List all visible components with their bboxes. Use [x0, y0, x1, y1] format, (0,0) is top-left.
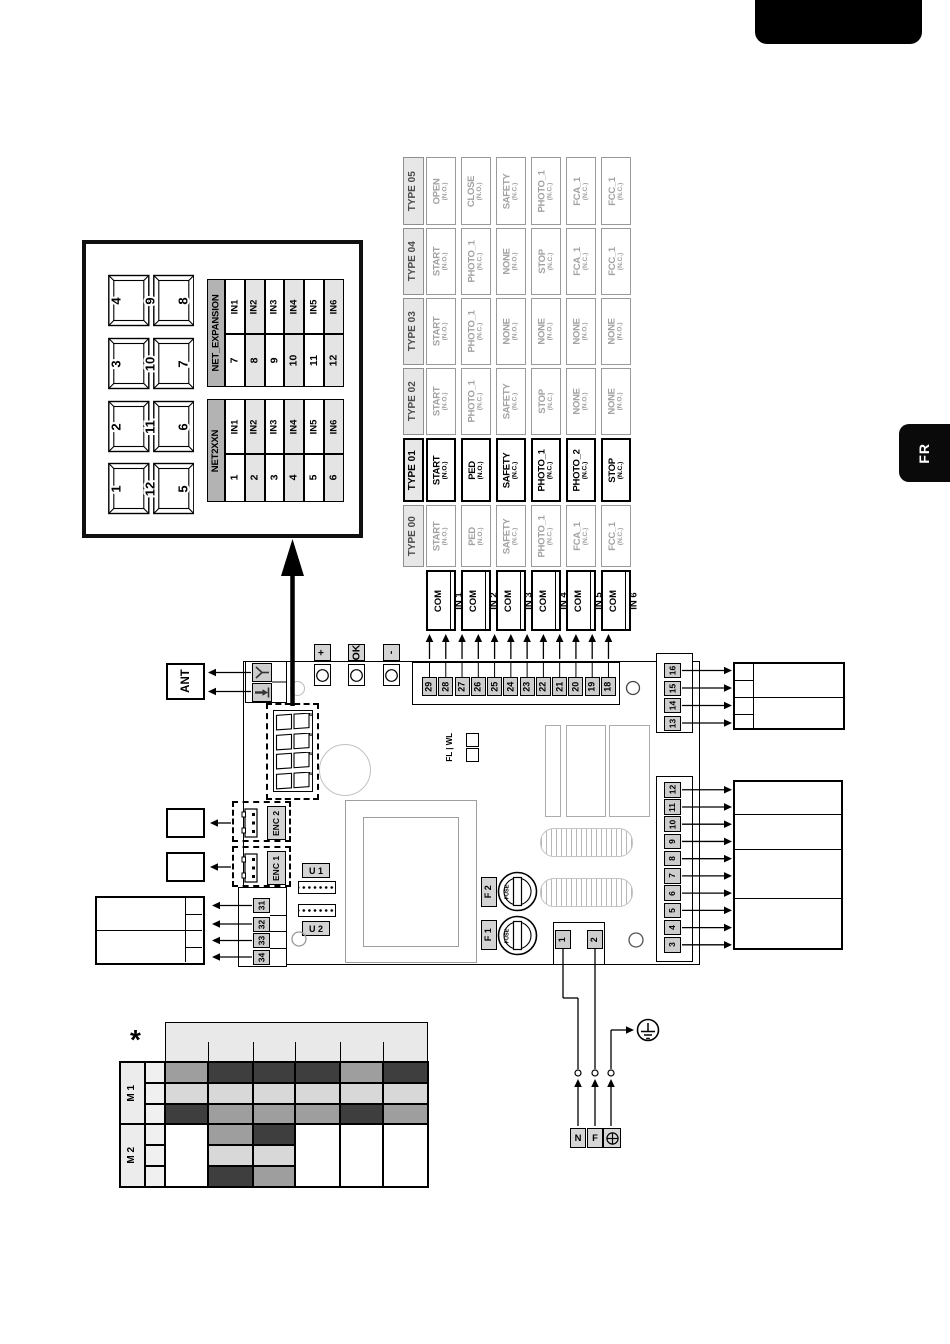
net-table-input: IN6	[324, 279, 344, 334]
terminal-6-text: 6	[668, 891, 677, 896]
seven-segment-icon: 3107	[108, 337, 194, 391]
net-table-input: IN6	[324, 399, 344, 454]
type-cell-text: SAFETY(N.C.)	[503, 452, 520, 488]
antenna-box: ANT	[166, 663, 205, 700]
com-label-text: COM	[574, 589, 584, 611]
fl-wl-pin	[466, 748, 479, 762]
seven-segment-display	[273, 710, 313, 792]
terminal-4-text: 4	[668, 925, 677, 930]
type-cell: NONE(N.O.)	[496, 228, 526, 295]
terminal-5: 5	[664, 903, 681, 919]
net-table-input-text: IN1	[230, 299, 240, 314]
divider	[97, 930, 202, 931]
type-header-type00: TYPE 00	[403, 505, 424, 567]
terminal-8-text: 8	[668, 856, 677, 861]
function-mode: (N.O.)	[618, 388, 625, 414]
function-mode: (N.C.)	[513, 518, 520, 554]
coil-1	[540, 828, 633, 857]
terminal-29: 29	[422, 677, 437, 696]
net-table-header-0-text: NET_EXPANSION	[211, 295, 221, 372]
button-label-plus-text: +	[317, 649, 328, 655]
digit-icon	[275, 752, 313, 770]
encoder-target-box-1	[166, 852, 205, 882]
in-label-text: IN 6	[630, 592, 640, 609]
svg-text:6: 6	[175, 423, 190, 430]
type-cell-text: START(N.O.)	[433, 521, 450, 550]
terminal-3: 3	[664, 937, 681, 953]
type-cell: FCA_1(N.C.)	[566, 228, 596, 295]
com-in-block: COMIN 3	[496, 570, 526, 631]
terminal-31: 31	[253, 898, 270, 913]
relay-1	[545, 725, 561, 817]
svg-text:11: 11	[142, 420, 157, 434]
net-table-terminal-text: 8	[249, 358, 260, 364]
svg-text:3: 3	[108, 360, 123, 367]
type-cell-text: FCC_1(N.C.)	[608, 247, 625, 276]
type-cell: STOP(N.C.)	[531, 228, 561, 295]
type-cell: STOP(N.C.)	[601, 438, 631, 502]
net-table-terminal-text: 9	[269, 358, 280, 364]
type-cell-text: OPEN(N.O.)	[433, 178, 450, 204]
function-mode: (N.C.)	[513, 452, 520, 488]
svg-text:8: 8	[175, 297, 190, 304]
type-cell: SAFETY(N.C.)	[496, 438, 526, 502]
type-cell: PHOTO_1(N.C.)	[461, 228, 491, 295]
type-cell: NONE(N.O.)	[566, 368, 596, 435]
svg-text:2: 2	[108, 423, 123, 430]
type-cell: FCA_1(N.C.)	[566, 157, 596, 225]
terminal-3-text: 3	[668, 942, 677, 947]
terminal-20-text: 20	[571, 681, 580, 691]
type-cell-text: NONE(N.O.)	[608, 318, 625, 344]
type-cell: PHOTO_2(N.C.)	[566, 438, 596, 502]
antenna-shield-terminal	[252, 683, 272, 702]
type-cell-text: START(N.O.)	[433, 247, 450, 276]
function-mode: (N.C.)	[618, 522, 625, 551]
pins	[299, 882, 335, 893]
net-table-terminal-text: 3	[269, 475, 280, 481]
net-table-input-text: IN5	[309, 299, 319, 314]
net-table-terminal: 10	[284, 334, 304, 387]
u1-pin-header	[298, 881, 336, 894]
type-header-type03: TYPE 03	[403, 298, 424, 365]
button-label-ok-text: OK	[351, 645, 362, 661]
digit-icon	[275, 713, 313, 731]
seven-segment-icon: 1125	[108, 462, 194, 516]
type-header-type01-text: TYPE 01	[408, 450, 419, 490]
function-mode: (N.C.)	[548, 249, 555, 274]
net-table-terminal-text: 11	[309, 355, 320, 366]
terminal-1-text: 1	[558, 937, 567, 942]
terminal-2: 2	[587, 930, 603, 949]
function-mode: (N.C.)	[548, 515, 555, 557]
type-cell-text: STOP(N.C.)	[608, 458, 625, 483]
net-table-input-text: IN6	[329, 419, 339, 434]
coil-2	[540, 878, 633, 907]
function-mode: (N.O.)	[478, 527, 485, 546]
net-table-input: IN4	[284, 399, 304, 454]
display-digit	[275, 772, 313, 790]
transformer-inner	[363, 817, 459, 947]
terminal-31-text: 31	[257, 901, 266, 910]
terminal-28-text: 28	[441, 681, 450, 691]
fuse1-label-text: F 1	[484, 928, 493, 941]
terminal-22-text: 22	[539, 681, 548, 691]
net-table-input-text: IN3	[270, 299, 280, 314]
terminal-6: 6	[664, 885, 681, 901]
net-table-input-text: IN3	[270, 419, 280, 434]
type-cell: NONE(N.O.)	[531, 298, 561, 365]
display-digit	[275, 752, 313, 770]
function-mode: (N.C.)	[583, 177, 590, 206]
function-mode: (N.O.)	[443, 247, 450, 276]
terminal-26-text: 26	[474, 681, 483, 691]
terminal-25: 25	[487, 677, 502, 696]
fuse2-label-text: F 2	[484, 885, 493, 898]
button-label-ok: OK	[348, 644, 365, 661]
net-table-terminal: 12	[324, 334, 344, 387]
function-mode: (N.C.)	[618, 247, 625, 276]
function-mode: (N.O.)	[443, 317, 450, 346]
net-table-terminal: 9	[265, 334, 285, 387]
divider	[735, 898, 841, 899]
net-table-terminal-text: 5	[309, 475, 320, 481]
function-mode: (N.O.)	[583, 388, 590, 414]
com-in-block: COMIN 2	[461, 570, 491, 631]
divider	[735, 814, 841, 815]
antenna-ground-icon	[253, 684, 271, 701]
type-cell-text: FCA_1(N.C.)	[573, 247, 590, 276]
net-table-input-text: IN4	[289, 419, 299, 434]
encoder-connector-enc2: ENC 2	[232, 801, 291, 842]
svg-text:4: 4	[108, 297, 123, 305]
function-mode: (N.C.)	[513, 173, 520, 209]
button-circle	[384, 668, 399, 683]
net-table-terminal-text: 12	[328, 355, 339, 367]
type-header-type01: TYPE 01	[403, 438, 424, 502]
fuse-text: FUSE	[505, 884, 511, 899]
com-label: COM	[533, 572, 555, 629]
motor-table-header-tick	[295, 1042, 296, 1062]
enc-label: ENC 1	[267, 851, 286, 885]
motor-table-header-tick	[208, 1042, 209, 1062]
antenna-terminal	[252, 663, 272, 682]
type-cell-text: NONE(N.O.)	[608, 388, 625, 414]
divider	[735, 697, 843, 698]
display-detail-box: 498310721161125NET_EXPANSIONIN17IN28IN39…	[82, 240, 363, 538]
net-table-input: IN5	[304, 279, 324, 334]
u2-label: U 2	[302, 921, 330, 936]
display-digit-group: 2116	[108, 400, 194, 454]
net-table-terminal: 4	[284, 454, 304, 502]
control-target-box-upper	[733, 662, 845, 730]
terminal-21: 21	[552, 677, 567, 696]
terminal-32-text: 32	[257, 919, 266, 928]
type-cell: PHOTO_1(N.C.)	[531, 505, 561, 567]
terminal-33: 33	[253, 933, 270, 948]
button-label-minus: -	[383, 644, 400, 661]
relay-2	[566, 725, 606, 817]
terminal-19-text: 19	[587, 681, 596, 691]
type-cell-text: CLOSE(N.O.)	[468, 175, 485, 206]
terminal-7-text: 7	[668, 874, 677, 879]
terminal-28: 28	[438, 677, 453, 696]
type-header-type03-text: TYPE 03	[408, 311, 419, 351]
type-header-type05: TYPE 05	[403, 157, 424, 225]
encoder-connector-enc1: ENC 1	[232, 846, 291, 887]
com-label: COM	[428, 572, 450, 629]
terminal-14-text: 14	[668, 701, 677, 710]
com-label: COM	[568, 572, 590, 629]
type-cell-text: NONE(N.O.)	[573, 388, 590, 414]
net-table-input: IN4	[284, 279, 304, 334]
function-mode: (N.C.)	[583, 522, 590, 551]
terminal-4: 4	[664, 920, 681, 936]
divider	[735, 714, 753, 715]
connector-icon	[241, 853, 261, 883]
type-header-type04: TYPE 04	[403, 228, 424, 295]
type-cell-text: SAFETY(N.C.)	[503, 173, 520, 209]
net-table-terminal-text: 7	[229, 358, 240, 364]
type-cell: SAFETY(N.C.)	[496, 505, 526, 567]
type-cell: PHOTO_1(N.C.)	[461, 298, 491, 365]
button-circle	[349, 668, 364, 683]
relay-3	[609, 725, 650, 817]
display-digit-group: 1125	[108, 462, 194, 516]
type-header-type05-text: TYPE 05	[408, 171, 419, 211]
neutral-label: N	[575, 1133, 582, 1144]
com-in-block: COMIN 6	[601, 570, 631, 631]
motor-table-header-tick	[253, 1042, 254, 1062]
svg-text:5: 5	[175, 485, 190, 492]
terminal-27: 27	[455, 677, 470, 696]
button-plus	[314, 664, 331, 686]
terminal-10-text: 10	[668, 819, 677, 828]
type-cell-text: FCC_1(N.C.)	[608, 522, 625, 551]
earth-icon	[605, 1131, 620, 1146]
function-mode: (N.O.)	[443, 387, 450, 416]
divider	[735, 849, 841, 850]
type-cell-text: PHOTO_1(N.C.)	[538, 449, 555, 491]
com-label-text: COM	[539, 589, 549, 611]
enc-label-text: ENC 1	[272, 855, 281, 880]
type-cell-text: START(N.O.)	[433, 455, 450, 484]
function-mode: (N.O.)	[478, 461, 485, 480]
terminal-11: 11	[664, 799, 681, 815]
type-cell: NONE(N.O.)	[601, 368, 631, 435]
type-cell-text: FCA_1(N.C.)	[573, 522, 590, 551]
pins	[299, 905, 335, 916]
display-digit-group: 3107	[108, 337, 194, 391]
type-header-type02-text: TYPE 02	[408, 381, 419, 421]
svg-text:12: 12	[142, 482, 157, 496]
buzzer-small	[290, 681, 305, 696]
seven-segment-icon: 2116	[108, 400, 194, 454]
net-table-input-text: IN2	[250, 299, 260, 314]
antenna-icon	[253, 664, 271, 681]
function-mode: (N.C.)	[513, 384, 520, 420]
manual-page: FR 498310721161125NET_EXPANSIONIN17IN28I…	[0, 0, 950, 1344]
function-mode: (N.C.)	[478, 240, 485, 282]
terminal-14: 14	[664, 698, 681, 713]
terminal-5-text: 5	[668, 908, 677, 913]
type-cell: PHOTO_1(N.C.)	[461, 368, 491, 435]
terminal-22: 22	[536, 677, 551, 696]
net-table-input: IN1	[225, 399, 245, 454]
terminal-13-text: 13	[668, 718, 677, 727]
svg-text:10: 10	[142, 357, 157, 371]
terminal-1: 1	[555, 930, 571, 949]
type-cell: PED(N.O.)	[461, 438, 491, 502]
function-mode: (N.C.)	[548, 449, 555, 491]
seven-segment-icon: 498	[108, 274, 194, 328]
earth-box	[603, 1128, 621, 1148]
net-table-input-text: IN5	[309, 419, 319, 434]
function-mode: (N.O.)	[513, 318, 520, 344]
u2-pin-header	[298, 904, 336, 917]
type-cell-text: STOP(N.C.)	[538, 249, 555, 274]
type-cell-text: SAFETY(N.C.)	[503, 384, 520, 420]
com-label: COM	[463, 572, 485, 629]
terminal-23-text: 23	[522, 681, 531, 691]
net-table-input: IN1	[225, 279, 245, 334]
net-table-terminal: 11	[304, 334, 324, 387]
accessory-target-box	[95, 896, 205, 965]
com-in-block: COMIN 4	[531, 570, 561, 631]
encoder-target-box-2	[166, 808, 205, 838]
type-cell: NONE(N.O.)	[601, 298, 631, 365]
language-tab-label: FR	[917, 443, 932, 464]
net-table-terminal: 1	[225, 454, 245, 502]
motor-table-header-tick	[383, 1042, 384, 1062]
terminal-7: 7	[664, 868, 681, 884]
terminal-9-text: 9	[668, 839, 677, 844]
terminal-27-text: 27	[457, 681, 466, 691]
header-banner	[755, 0, 922, 44]
divider	[735, 680, 753, 681]
type-cell: SAFETY(N.C.)	[496, 368, 526, 435]
terminal-18-text: 18	[604, 681, 613, 691]
svg-text:9: 9	[142, 297, 157, 304]
function-mode: (N.O.)	[618, 318, 625, 344]
fl-wl-pin	[466, 733, 479, 747]
type-header-type00-text: TYPE 00	[408, 516, 419, 556]
connector-icon	[241, 808, 261, 838]
type-cell: NONE(N.O.)	[566, 298, 596, 365]
net-table-terminal-text: 2	[249, 475, 260, 481]
fuse-text: FUSE	[505, 928, 511, 943]
button-ok	[348, 664, 365, 686]
com-in-block: COMIN 1	[426, 570, 456, 631]
terminal-8: 8	[664, 851, 681, 867]
net-table-terminal-text: 10	[289, 355, 300, 367]
net-table-terminal: 8	[245, 334, 265, 387]
enc-label-text: ENC 2	[272, 810, 281, 835]
type-cell-text: SAFETY(N.C.)	[503, 518, 520, 554]
terminal-2-text: 2	[590, 937, 599, 942]
terminal-26: 26	[471, 677, 486, 696]
com-label-text: COM	[434, 589, 444, 611]
u2-label-text: U 2	[309, 924, 323, 934]
type-cell-text: PHOTO_1(N.C.)	[468, 380, 485, 422]
type-cell-text: START(N.O.)	[433, 317, 450, 346]
motor-table-outline	[119, 1061, 429, 1188]
terminal-18: 18	[601, 677, 616, 696]
net-table-header-0: NET_EXPANSION	[207, 279, 225, 387]
type-cell: SAFETY(N.C.)	[496, 157, 526, 225]
terminal-20: 20	[568, 677, 583, 696]
motor-table-header	[165, 1022, 428, 1062]
u1-label: U 1	[302, 863, 330, 878]
net-table-terminal-text: 6	[328, 475, 339, 481]
fuse-holder: FUSE	[495, 869, 540, 914]
svg-text:1: 1	[108, 485, 123, 492]
type-cell-text: PHOTO_1(N.C.)	[538, 515, 555, 557]
function-mode: (N.O.)	[443, 178, 450, 204]
net-table-input: IN3	[265, 399, 285, 454]
terminal-24-text: 24	[506, 681, 515, 691]
net-table-terminal: 6	[324, 454, 344, 502]
function-mode: (N.O.)	[583, 318, 590, 344]
digit-icon	[275, 733, 313, 751]
terminal-10: 10	[664, 816, 681, 832]
net-table-input-text: IN6	[329, 299, 339, 314]
type-cell: START(N.O.)	[426, 368, 456, 435]
divider	[753, 664, 754, 728]
terminal-19: 19	[585, 677, 600, 696]
type-cell-text: PHOTO_2(N.C.)	[573, 449, 590, 491]
type-cell: PHOTO_1(N.C.)	[531, 157, 561, 225]
type-cell-text: FCA_1(N.C.)	[573, 177, 590, 206]
type-cell-text: STOP(N.C.)	[538, 389, 555, 414]
function-mode: (N.O.)	[513, 248, 520, 274]
net-table-input-text: IN2	[250, 419, 260, 434]
net-table-header-1-text: NET2XXN	[211, 429, 221, 471]
net-table-input: IN2	[245, 399, 265, 454]
terminal-24: 24	[503, 677, 518, 696]
terminal-16: 16	[664, 663, 681, 678]
type-cell-text: PED(N.O.)	[468, 527, 485, 546]
type-cell-text: NONE(N.O.)	[503, 318, 520, 344]
fuse-holder: FUSE	[495, 913, 540, 958]
type-cell: NONE(N.O.)	[496, 298, 526, 365]
terminal-29-text: 29	[425, 681, 434, 691]
type-header-type02: TYPE 02	[403, 368, 424, 435]
type-cell-text: PED(N.O.)	[468, 461, 485, 480]
com-in-block: COMIN 5	[566, 570, 596, 631]
net-table-terminal-text: 1	[229, 475, 240, 481]
function-mode: (N.C.)	[618, 177, 625, 206]
terminal-25-text: 25	[490, 681, 499, 691]
terminal-34: 34	[253, 950, 270, 965]
com-label: COM	[603, 572, 625, 629]
function-mode: (N.O.)	[478, 175, 485, 206]
phase-box: F	[587, 1128, 603, 1148]
asterisk-glyph: *	[130, 1024, 141, 1055]
type-cell: PHOTO_1(N.C.)	[531, 438, 561, 502]
terminal-15: 15	[664, 681, 681, 696]
function-mode: (N.O.)	[443, 455, 450, 484]
type-cell: PED(N.O.)	[461, 505, 491, 567]
display-digit	[275, 713, 313, 731]
type-cell: START(N.O.)	[426, 438, 456, 502]
type-cell-text: PHOTO_1(N.C.)	[468, 240, 485, 282]
function-mode: (N.C.)	[478, 380, 485, 422]
type-cell: CLOSE(N.O.)	[461, 157, 491, 225]
com-label-text: COM	[504, 589, 514, 611]
net-table-terminal: 5	[304, 454, 324, 502]
type-cell: FCA_1(N.C.)	[566, 505, 596, 567]
